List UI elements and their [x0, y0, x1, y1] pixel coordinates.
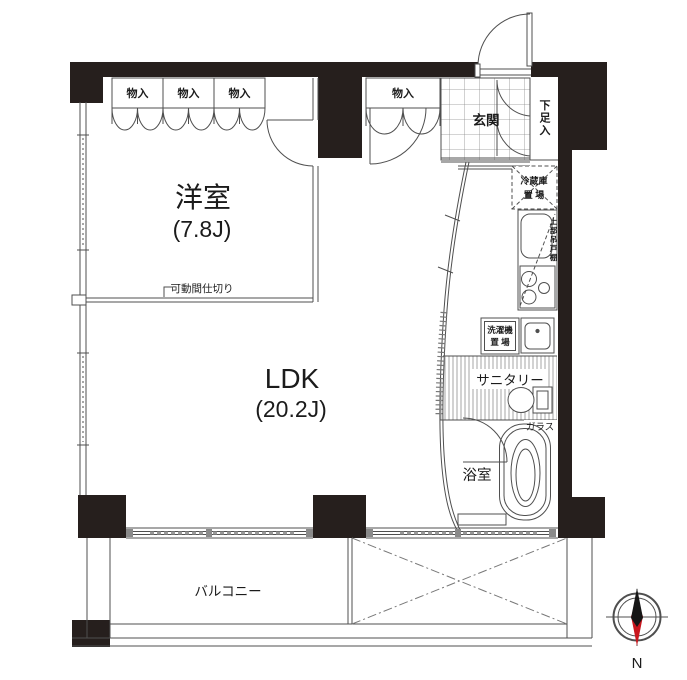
ldk-name: LDK: [265, 363, 320, 394]
pillar-balcony-left: [72, 620, 110, 647]
floor-plan-canvas: 物入 物入 物入 物入 洋室 (7.8J) 可動間仕切り LDK (20.2J)…: [0, 0, 687, 680]
closet-label-2: 物入: [178, 86, 200, 100]
wall-stub-center: [318, 62, 362, 158]
western-room-name: 洋室: [175, 182, 231, 213]
western-room-right-wall: [313, 78, 318, 302]
western-room-door-swing: [267, 120, 313, 166]
washer-label-1: 洗濯機: [487, 325, 513, 335]
washer-label-2: 置 場: [490, 337, 510, 347]
balcony-label: バルコニー: [194, 584, 261, 599]
ldk-size: (20.2J): [255, 396, 327, 422]
compass: [606, 588, 668, 646]
balcony-cross-section: [352, 538, 567, 624]
wall-right: [558, 150, 572, 498]
wall-top-mid-band: [362, 62, 478, 77]
south-window-right: [366, 528, 558, 538]
west-window-lower: [77, 353, 89, 445]
closet-label-1: 物入: [127, 86, 149, 100]
western-room-size: (7.8J): [173, 216, 232, 242]
bathtub: [500, 424, 551, 520]
sanitary-area: [440, 356, 557, 432]
shoe-cabinet-label: 下足入: [538, 99, 551, 137]
entrance-label: 玄関: [473, 112, 500, 128]
bath-step: [458, 514, 506, 525]
south-window-left: [126, 528, 313, 538]
west-window-upper: [77, 135, 89, 250]
pillar-bottom-mid: [313, 495, 366, 538]
refrigerator-label-2: 置 場: [524, 189, 545, 200]
hall-closet: [366, 78, 440, 134]
washer-space: [481, 318, 519, 354]
hall-door-swing: [370, 108, 426, 164]
movable-partition-label: 可動間仕切り: [171, 282, 234, 295]
wall-top-left-band: [70, 62, 318, 77]
toilet: [508, 387, 552, 413]
bathroom-label: 浴室: [463, 467, 492, 484]
stove: [520, 266, 555, 308]
closet-label-hall: 物入: [392, 86, 414, 100]
refrigerator-label-1: 冷蔵庫: [520, 175, 547, 186]
balcony-area: [72, 538, 592, 646]
closet-row: [112, 78, 265, 130]
glass-label: ガラス: [526, 422, 554, 433]
wall-corner-bottom-right: [558, 497, 605, 538]
compass-north-label: N: [632, 655, 643, 672]
upper-cabinet-label: 上部吊戸棚: [549, 216, 558, 262]
wall-corner-top-right: [558, 62, 607, 150]
entrance-door-swing: [475, 13, 532, 77]
wash-basin: [521, 318, 554, 353]
closet-label-3: 物入: [229, 86, 251, 100]
refrigerator-space: [512, 166, 557, 209]
sanitary-label: サニタリー: [476, 373, 544, 388]
kitchen-sink: [521, 214, 552, 258]
floor-plan-page: 物入 物入 物入 物入 洋室 (7.8J) 可動間仕切り LDK (20.2J)…: [0, 0, 687, 680]
pillar-bottom-left: [78, 495, 126, 538]
